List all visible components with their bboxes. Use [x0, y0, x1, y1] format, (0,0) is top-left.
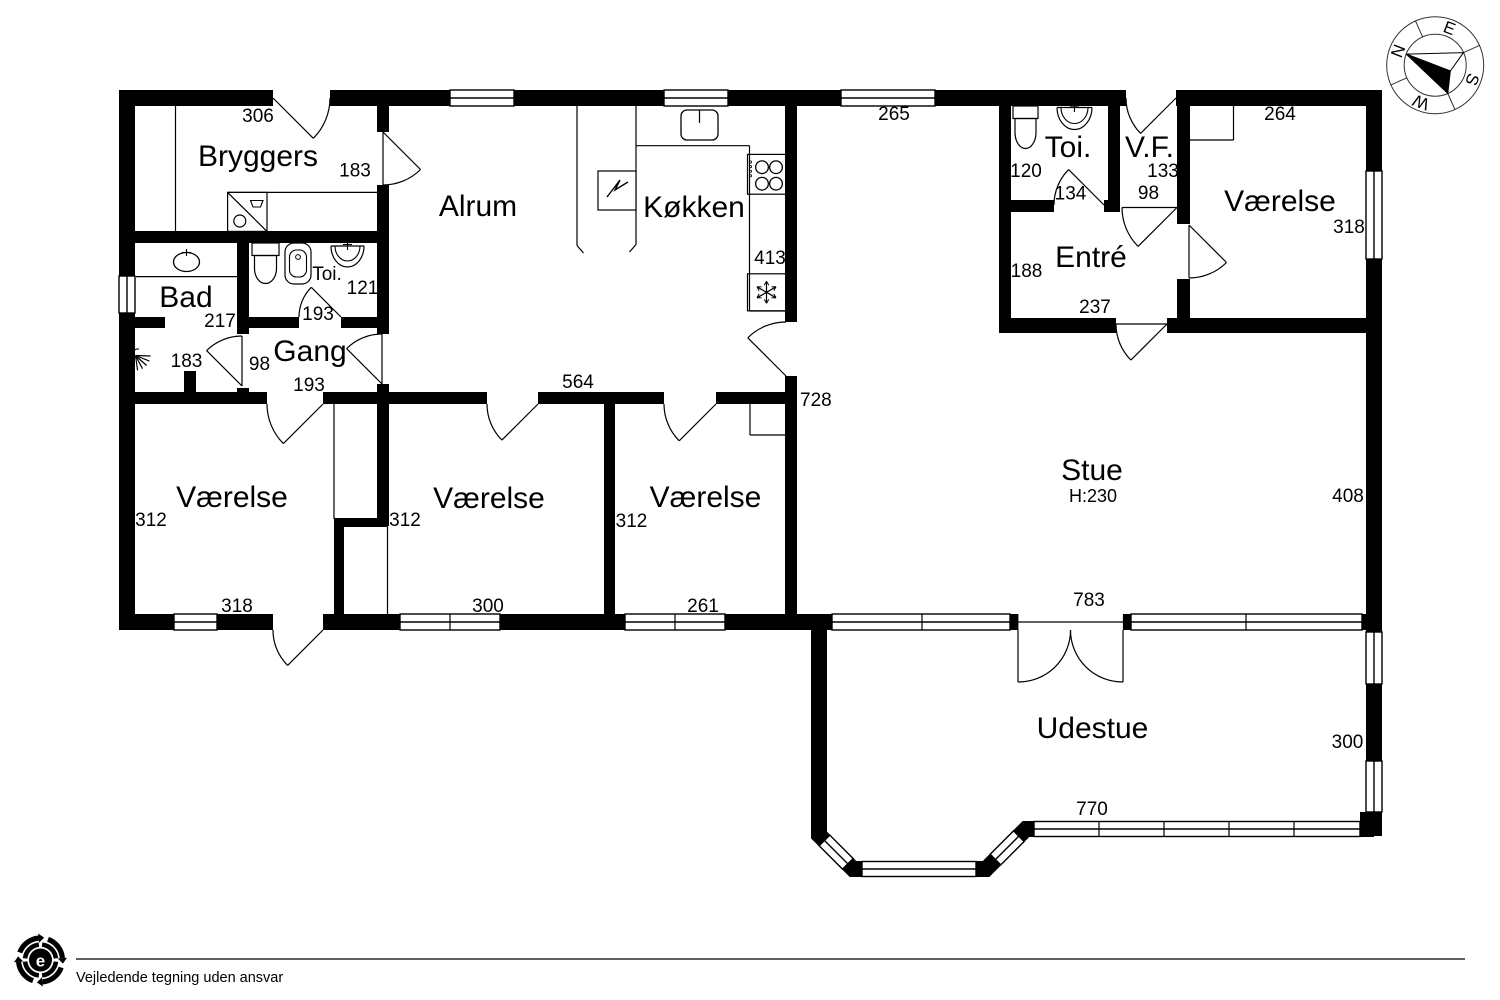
svg-text:564: 564 — [562, 372, 594, 393]
svg-text:Stue: Stue — [1061, 454, 1123, 487]
svg-text:770: 770 — [1076, 799, 1108, 820]
svg-text:193: 193 — [293, 375, 325, 396]
svg-text:Vejledende tegning uden ansvar: Vejledende tegning uden ansvar — [76, 970, 283, 986]
svg-text:98: 98 — [1138, 183, 1159, 204]
svg-text:Entré: Entré — [1055, 241, 1127, 274]
svg-text:Bad: Bad — [159, 281, 212, 314]
svg-text:120: 120 — [1010, 161, 1042, 182]
svg-text:408: 408 — [1332, 486, 1364, 507]
svg-text:Gang: Gang — [273, 335, 346, 368]
svg-text:312: 312 — [135, 510, 167, 531]
svg-text:e: e — [36, 952, 45, 971]
svg-text:Alrum: Alrum — [439, 190, 517, 223]
svg-text:306: 306 — [242, 106, 274, 127]
svg-text:318: 318 — [1333, 217, 1365, 238]
svg-text:134: 134 — [1055, 184, 1087, 205]
svg-text:Værelse: Værelse — [1224, 185, 1336, 218]
svg-text:121: 121 — [347, 278, 379, 299]
svg-text:Udestue: Udestue — [1037, 712, 1149, 745]
svg-text:312: 312 — [389, 510, 421, 531]
svg-text:98: 98 — [249, 354, 270, 375]
svg-text:Toi.: Toi. — [312, 264, 342, 285]
svg-text:312: 312 — [616, 511, 648, 532]
svg-text:783: 783 — [1073, 590, 1105, 611]
svg-text:193: 193 — [302, 304, 334, 325]
svg-text:318: 318 — [221, 596, 253, 617]
svg-text:133: 133 — [1147, 161, 1179, 182]
svg-text:183: 183 — [171, 351, 203, 372]
svg-text:413: 413 — [754, 248, 786, 269]
svg-text:H:230: H:230 — [1069, 486, 1117, 506]
svg-text:Værelse: Værelse — [650, 481, 762, 514]
svg-text:728: 728 — [800, 390, 832, 411]
svg-text:261: 261 — [687, 596, 719, 617]
svg-text:Værelse: Værelse — [176, 481, 288, 514]
svg-text:Værelse: Værelse — [433, 482, 545, 515]
svg-text:300: 300 — [1332, 732, 1364, 753]
svg-text:188: 188 — [1011, 261, 1043, 282]
svg-text:V.F.: V.F. — [1125, 131, 1174, 164]
svg-text:Bryggers: Bryggers — [198, 140, 318, 173]
svg-text:265: 265 — [878, 104, 910, 125]
svg-text:300: 300 — [472, 596, 504, 617]
svg-text:Toi.: Toi. — [1045, 131, 1092, 164]
svg-text:264: 264 — [1264, 104, 1296, 125]
svg-text:217: 217 — [204, 311, 236, 332]
svg-text:Køkken: Køkken — [643, 191, 745, 224]
svg-text:183: 183 — [339, 161, 371, 182]
svg-text:237: 237 — [1079, 297, 1111, 318]
